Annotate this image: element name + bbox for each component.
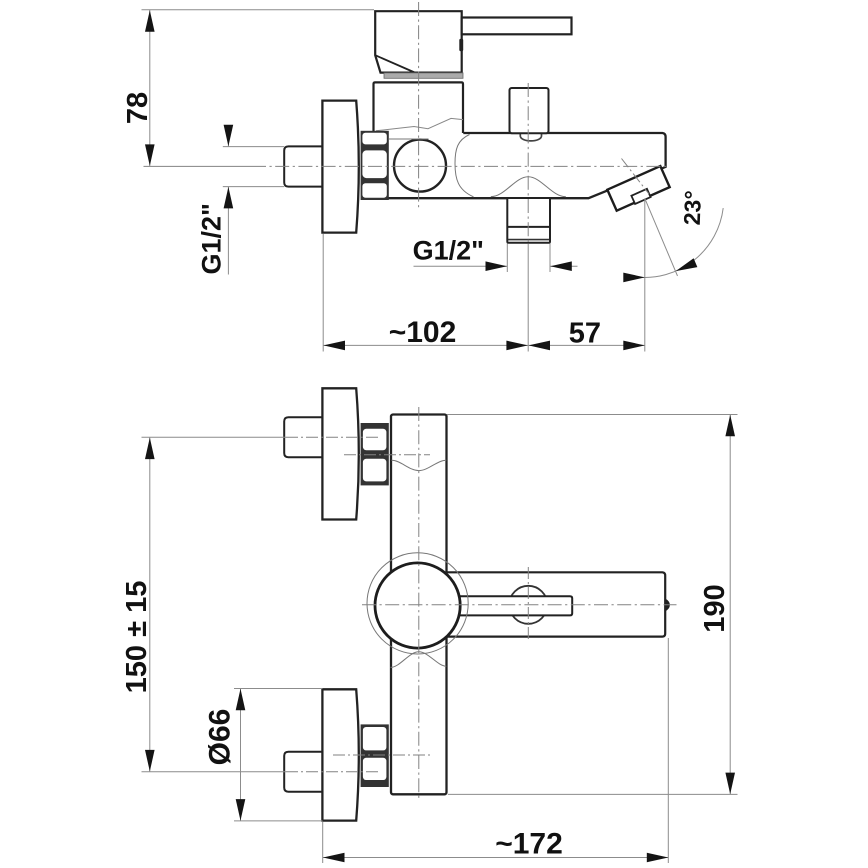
svg-text:78: 78 <box>122 92 154 124</box>
svg-text:~172: ~172 <box>495 828 563 861</box>
svg-text:G1/2": G1/2" <box>413 235 484 265</box>
svg-text:~102: ~102 <box>389 316 457 349</box>
svg-text:Ø66: Ø66 <box>204 709 237 766</box>
svg-text:190: 190 <box>699 584 731 632</box>
svg-text:150 ± 15: 150 ± 15 <box>121 581 153 694</box>
svg-text:57: 57 <box>569 317 601 349</box>
svg-text:G1/2": G1/2" <box>196 203 226 274</box>
svg-text:23°: 23° <box>679 190 706 226</box>
